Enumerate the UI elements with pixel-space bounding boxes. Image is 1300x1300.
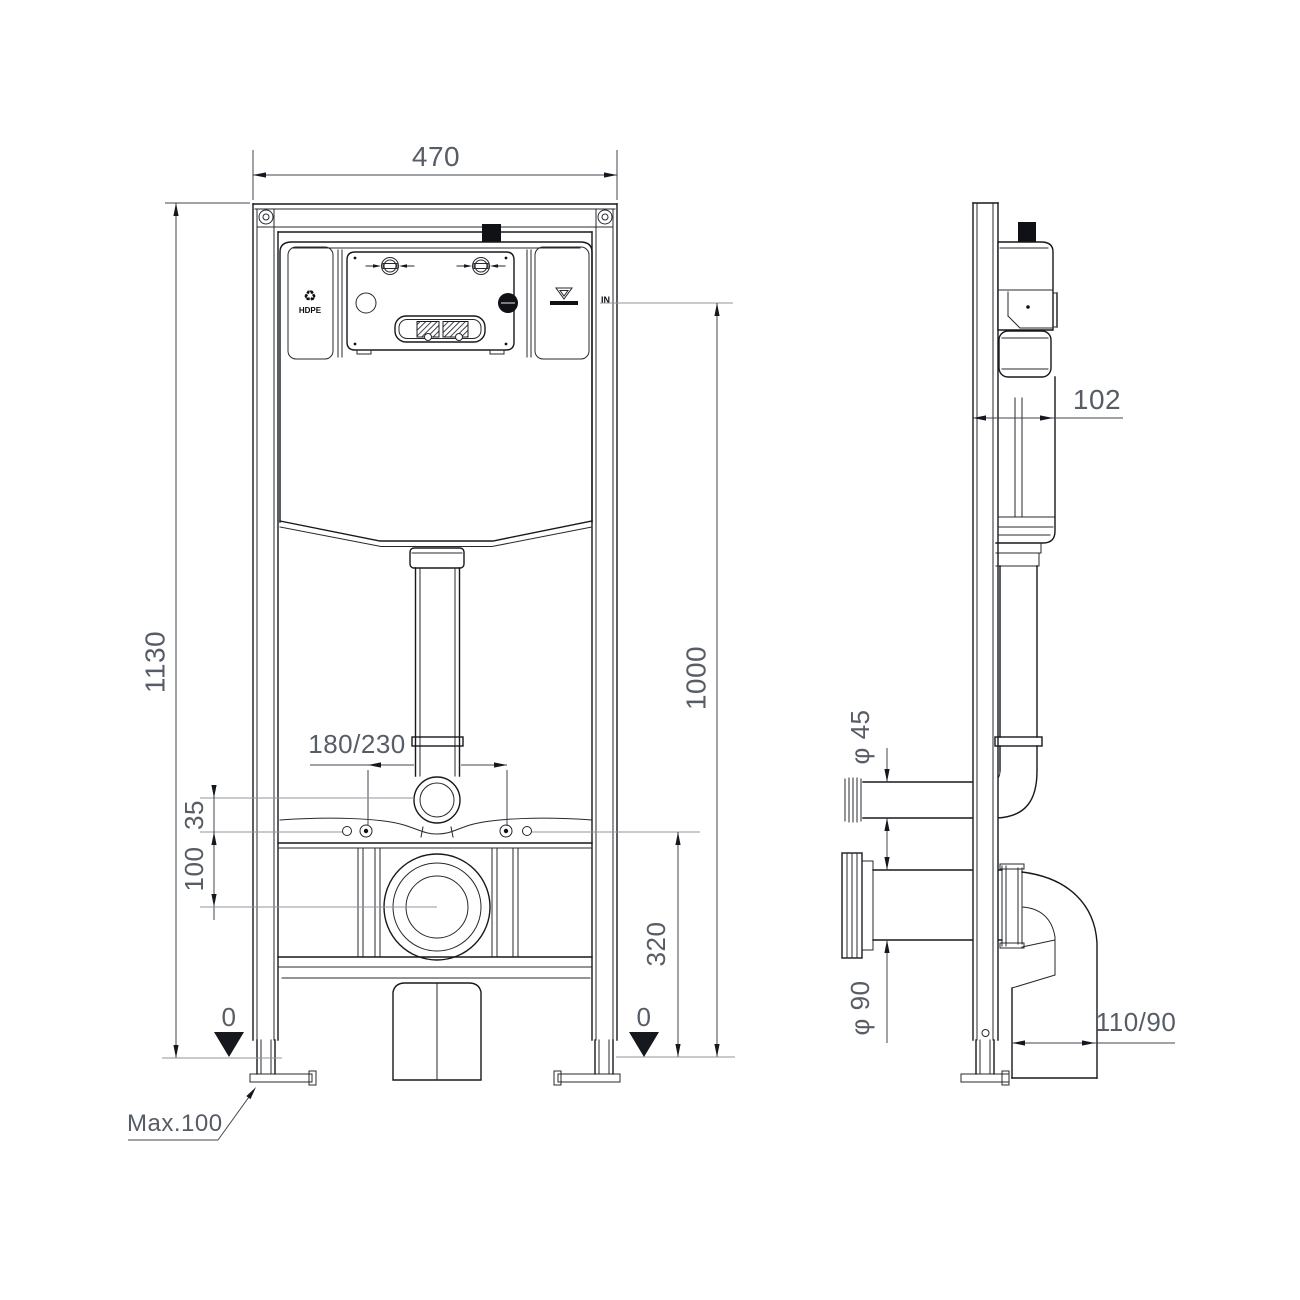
svg-text:φ 90: φ 90 <box>845 980 875 1035</box>
svg-text:110/90: 110/90 <box>1096 1007 1177 1037</box>
access-panel <box>347 252 518 354</box>
leader-foot-adjust: Max.100 <box>127 1087 256 1140</box>
dim-outlet: 110/90 <box>1012 1007 1176 1046</box>
adjusting-screw-right <box>457 258 505 275</box>
cistern-frame-drawing: ♻ HDPE <box>0 0 1300 1300</box>
waste-elbow <box>1012 872 1097 1078</box>
dim-width: 470 <box>253 141 617 200</box>
front-cistern: ♻ HDPE <box>280 224 610 547</box>
filler-cap <box>482 224 501 242</box>
svg-text:180/230: 180/230 <box>308 729 405 759</box>
side-frame-bar <box>973 203 998 1040</box>
flush-valve-slot <box>395 316 485 342</box>
side-waste-pipe <box>842 853 1097 1078</box>
dimensions-side: 102 φ 45 φ 90 110/90 <box>845 384 1176 1046</box>
water-level-icon <box>550 288 578 305</box>
svg-text:1130: 1130 <box>139 631 170 693</box>
side-flush-pipe <box>845 771 1037 822</box>
adjusting-screw-left <box>366 258 414 275</box>
flush-elbow <box>414 777 460 823</box>
svg-text:320: 320 <box>641 922 671 967</box>
front-flush-pipe <box>280 548 592 837</box>
material-label: HDPE <box>299 306 322 315</box>
datum-left: 0 <box>162 1002 282 1058</box>
corner-screw-left <box>259 210 273 224</box>
front-lower-frame <box>278 843 592 1080</box>
side-filler-cap <box>1018 222 1036 242</box>
svg-text:35: 35 <box>179 800 209 830</box>
dim-bolt-spacing: 180/230 <box>308 729 507 826</box>
inlet-port <box>356 293 376 313</box>
recycle-icon: ♻ <box>303 288 316 305</box>
side-cistern <box>995 222 1057 771</box>
svg-text:φ 45: φ 45 <box>845 709 875 764</box>
front-view: ♻ HDPE <box>200 204 700 1085</box>
side-view <box>842 203 1097 1085</box>
svg-text:0: 0 <box>222 1002 237 1032</box>
corner-screw-right <box>598 210 612 224</box>
svg-text:470: 470 <box>412 141 460 172</box>
svg-text:0: 0 <box>637 1002 652 1032</box>
svg-text:1000: 1000 <box>680 646 711 710</box>
technical-drawing-page: ♻ HDPE <box>0 0 1300 1300</box>
svg-text:100: 100 <box>179 847 209 892</box>
fixing-bolts <box>200 825 700 837</box>
svg-text:102: 102 <box>1073 384 1121 415</box>
svg-text:Max.100: Max.100 <box>127 1110 223 1137</box>
dim-height: 1130 <box>139 203 250 1058</box>
